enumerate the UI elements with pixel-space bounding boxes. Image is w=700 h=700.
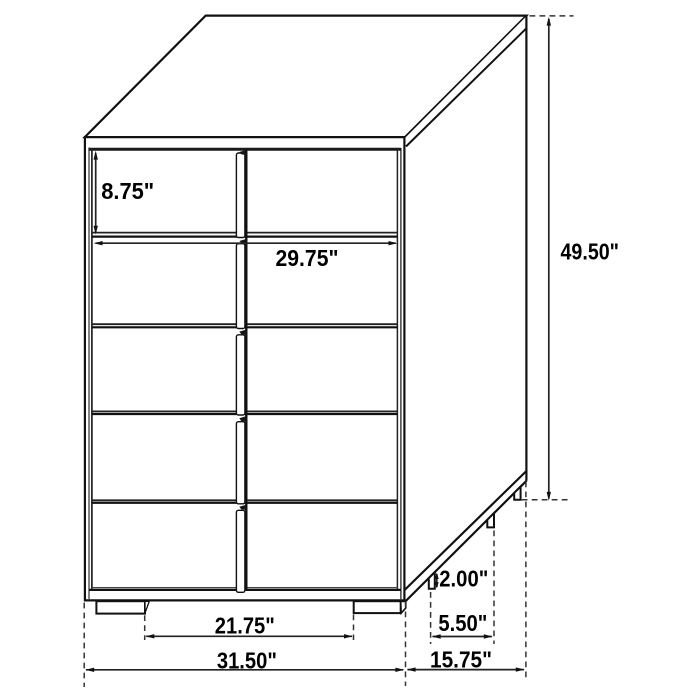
svg-text:15.75": 15.75" [430, 646, 492, 672]
svg-text:5.50": 5.50" [438, 610, 487, 636]
svg-text:31.50": 31.50" [217, 647, 277, 673]
svg-text:8.75": 8.75" [101, 178, 154, 204]
svg-text:49.50": 49.50" [561, 238, 620, 264]
svg-text:21.75": 21.75" [215, 612, 275, 638]
svg-text:2.00": 2.00" [439, 566, 488, 592]
svg-text:29.75": 29.75" [276, 245, 339, 271]
